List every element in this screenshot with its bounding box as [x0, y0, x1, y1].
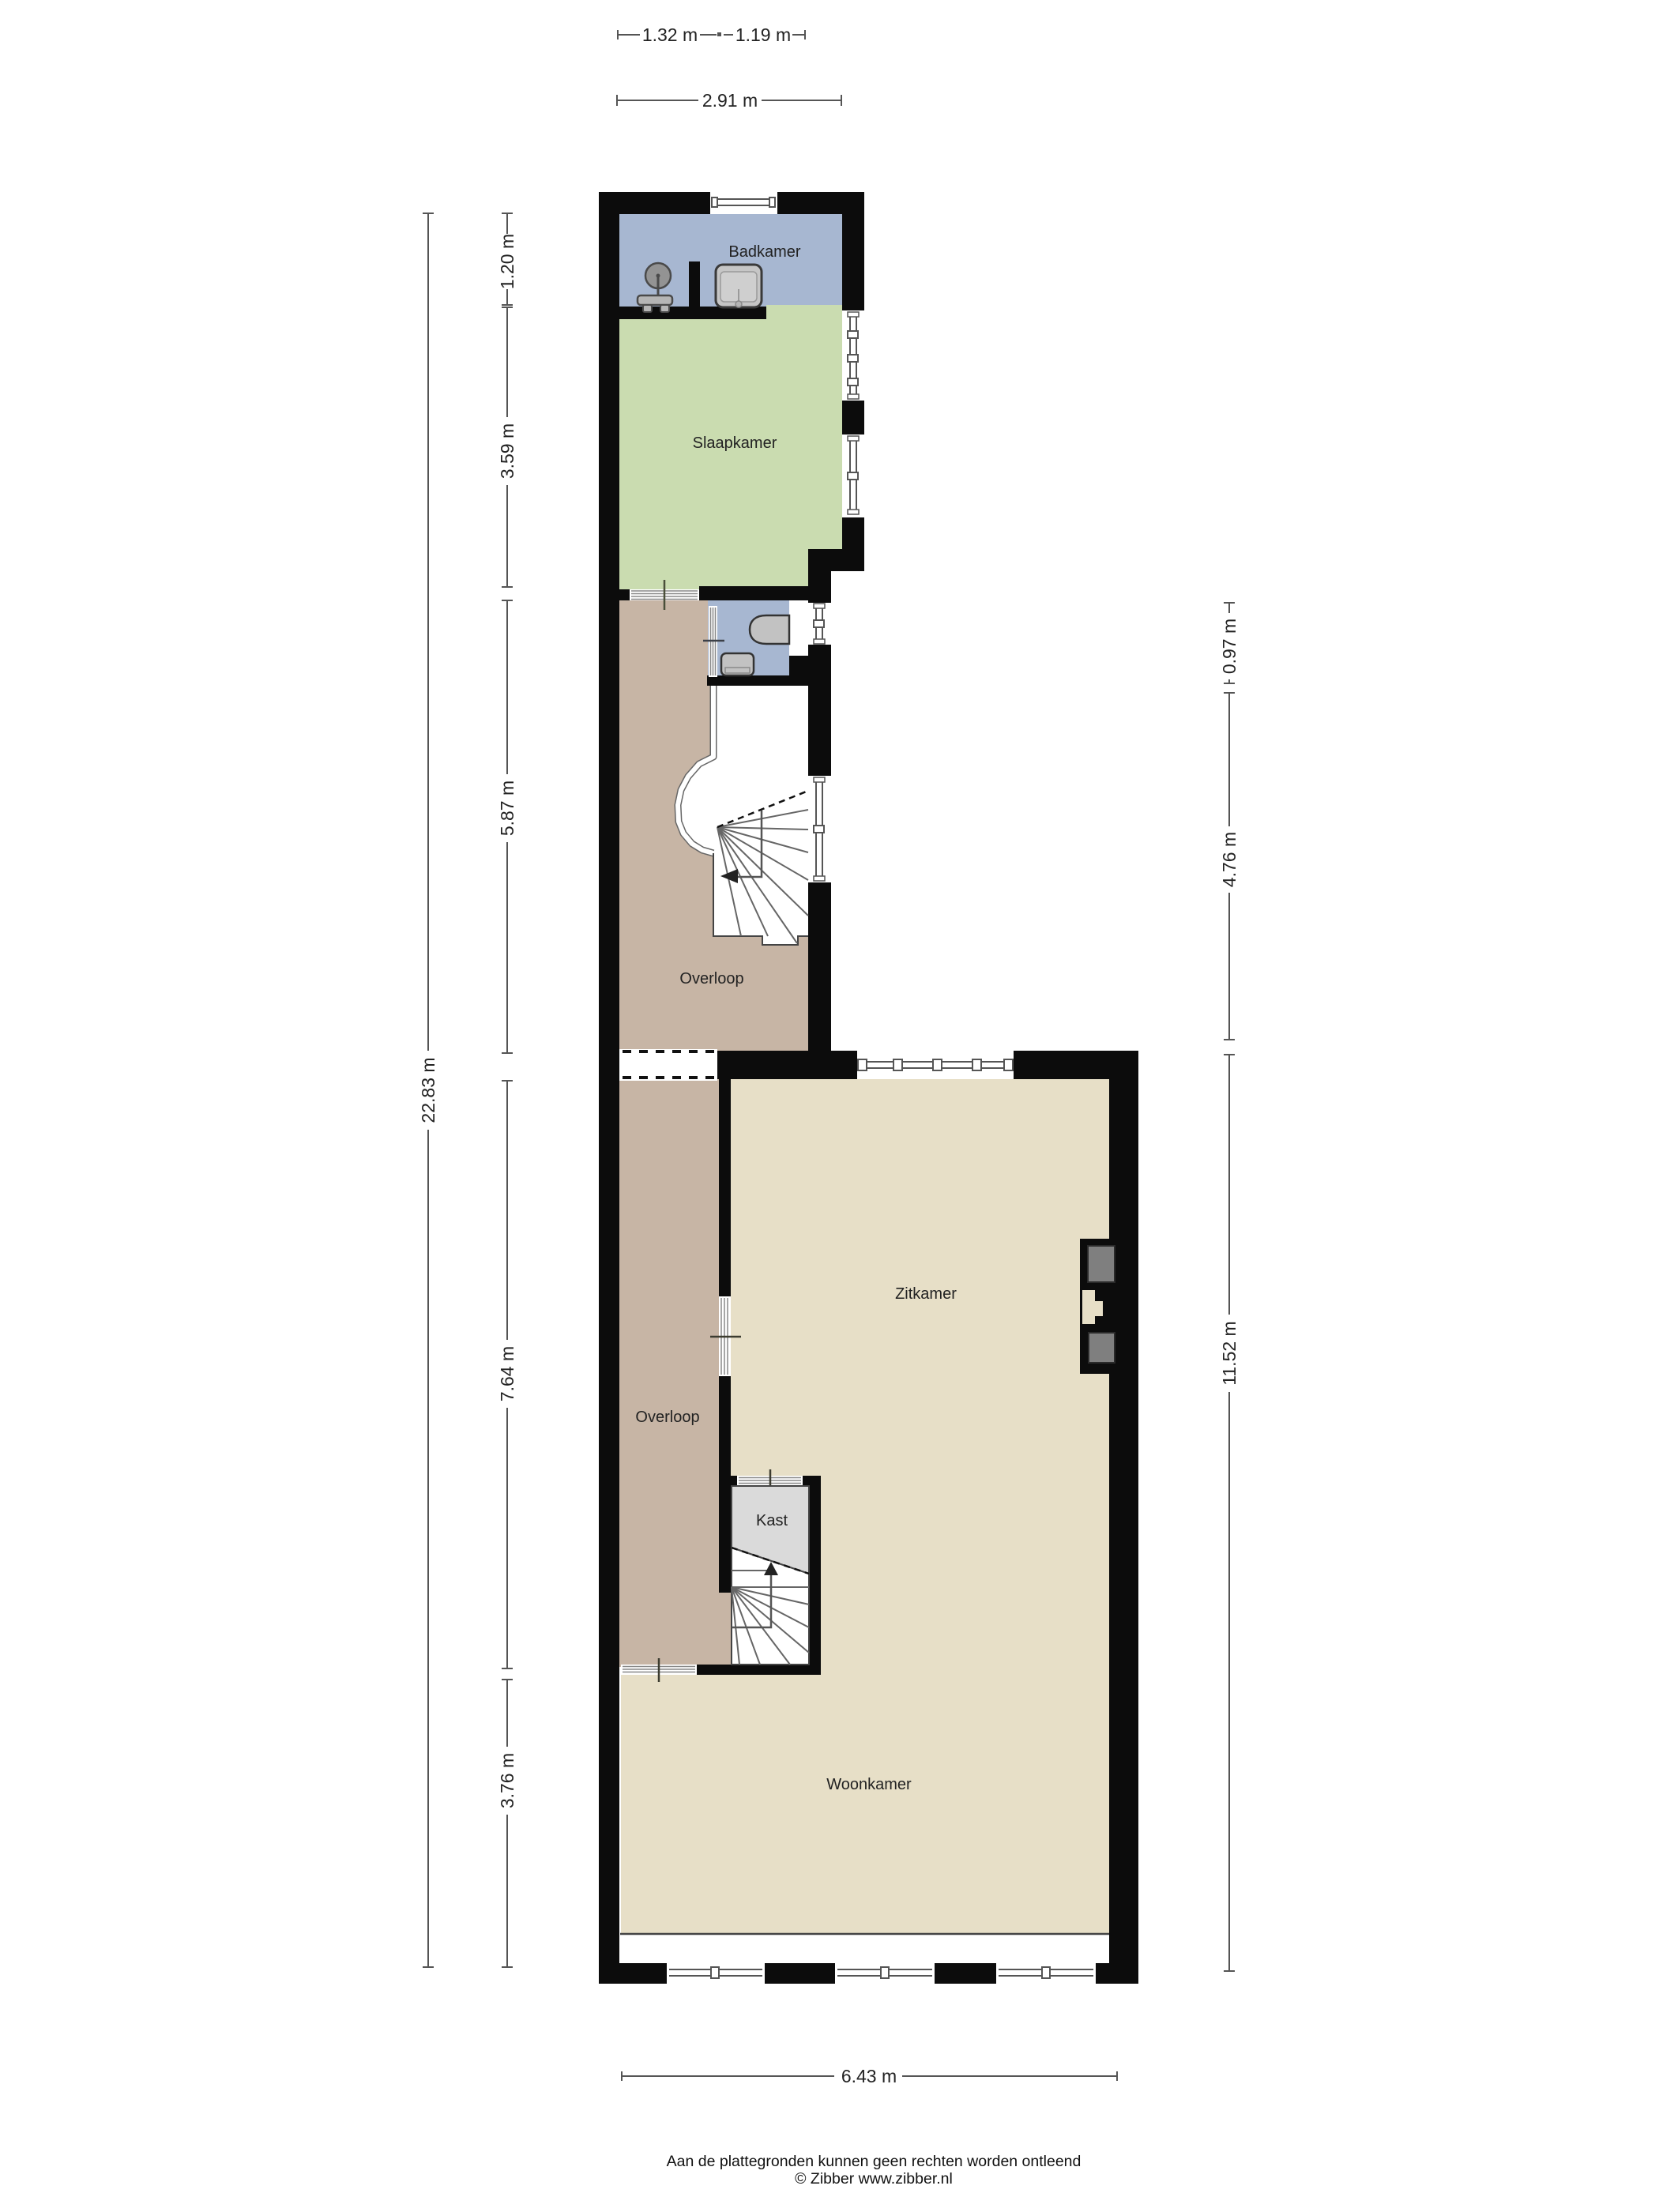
svg-text:Kast: Kast — [756, 1512, 788, 1529]
svg-text:3.59 m: 3.59 m — [497, 423, 517, 479]
svg-text:Overloop: Overloop — [679, 970, 743, 987]
svg-text:22.83 m: 22.83 m — [418, 1057, 438, 1123]
svg-text:Badkamer: Badkamer — [728, 243, 800, 261]
svg-text:Zitkamer: Zitkamer — [895, 1285, 957, 1303]
svg-text:7.64 m: 7.64 m — [497, 1346, 517, 1401]
svg-text:1.32 m: 1.32 m — [642, 24, 698, 45]
svg-text:4.76 m: 4.76 m — [1219, 832, 1240, 887]
svg-text:6.43 m: 6.43 m — [841, 2066, 897, 2086]
svg-text:Overloop: Overloop — [635, 1409, 699, 1426]
svg-text:11.52 m: 11.52 m — [1219, 1321, 1240, 1385]
svg-text:1.19 m: 1.19 m — [735, 24, 791, 45]
svg-text:1.20 m: 1.20 m — [497, 234, 517, 289]
svg-text:0.97 m: 0.97 m — [1219, 619, 1240, 674]
svg-text:2.91 m: 2.91 m — [702, 90, 758, 111]
svg-text:Slaapkamer: Slaapkamer — [693, 434, 777, 452]
svg-text:© Zibber www.zibber.nl: © Zibber www.zibber.nl — [795, 2170, 953, 2188]
svg-text:Aan de plattegronden kunnen ge: Aan de plattegronden kunnen geen rechten… — [667, 2153, 1082, 2170]
svg-text:Woonkamer: Woonkamer — [826, 1776, 912, 1793]
svg-text:3.76 m: 3.76 m — [497, 1753, 517, 1808]
svg-text:5.87 m: 5.87 m — [497, 781, 517, 836]
